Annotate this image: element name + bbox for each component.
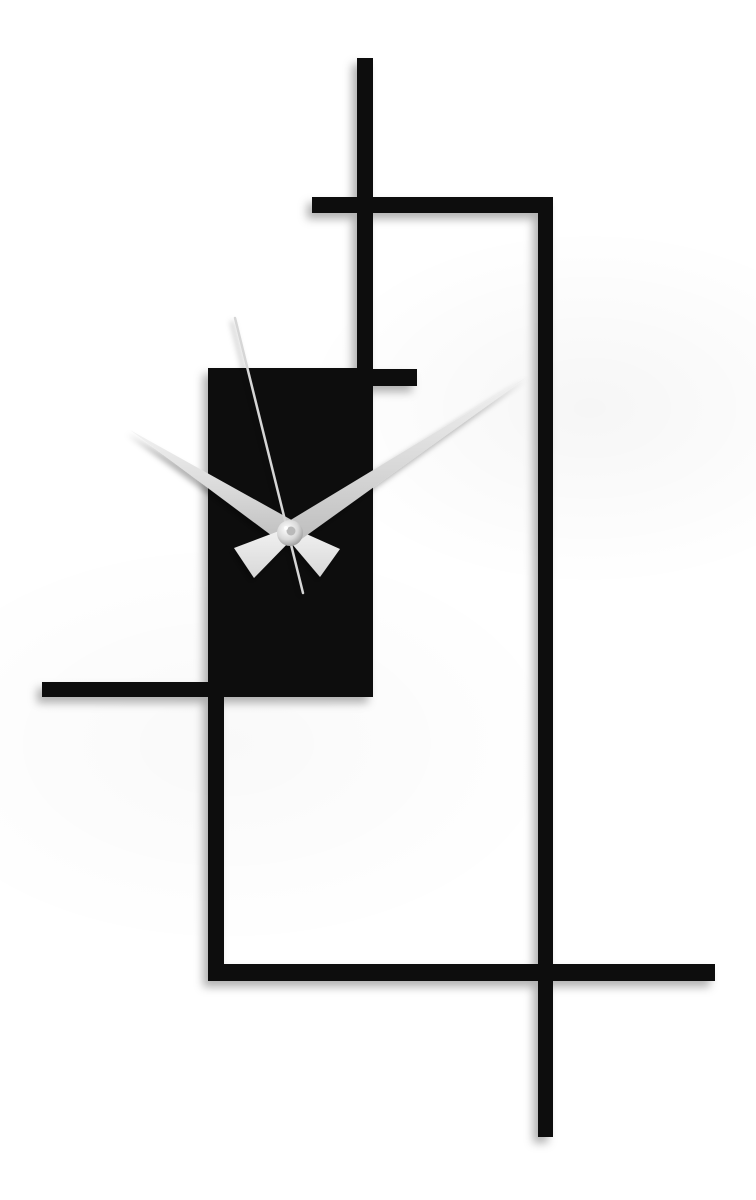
hub-highlight <box>284 526 288 530</box>
top-vertical-bar <box>357 58 373 380</box>
bottom-horizontal-bar <box>208 964 715 981</box>
right-vertical-bar <box>538 197 553 1137</box>
face-extension-bar <box>373 369 417 386</box>
left-horizontal-bar <box>42 682 208 697</box>
clock-frame <box>42 58 715 1137</box>
left-vertical-bar <box>208 688 224 981</box>
wall-clock <box>0 0 756 1200</box>
upper-horizontal-bar <box>312 197 553 213</box>
product-photo <box>0 0 756 1200</box>
